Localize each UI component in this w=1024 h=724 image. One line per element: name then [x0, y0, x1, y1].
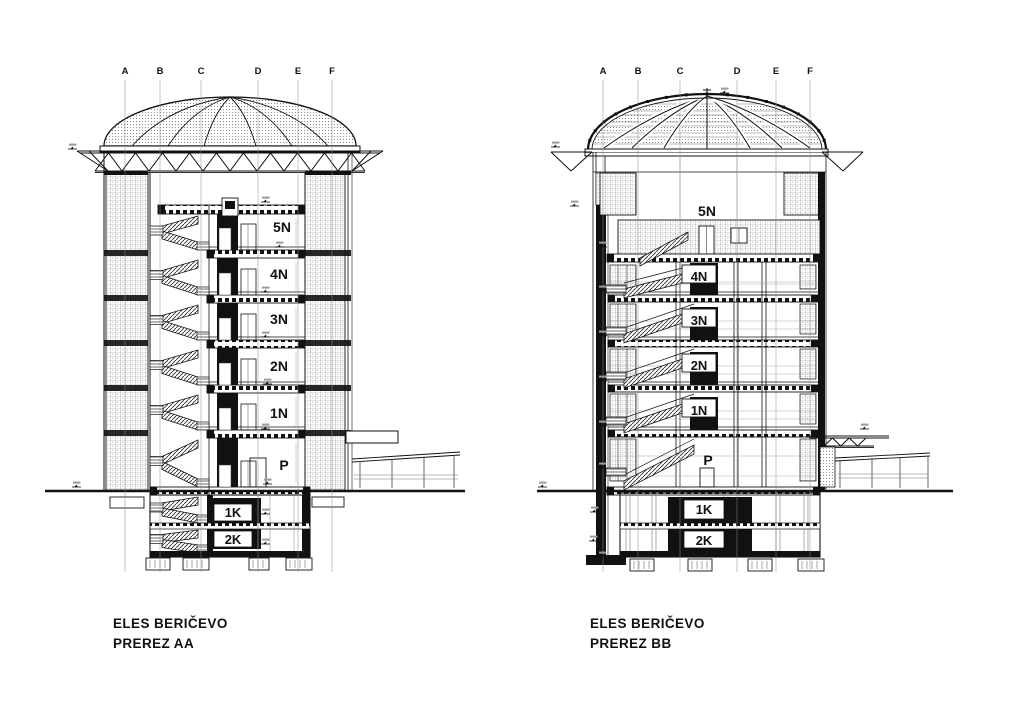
- stair-flight: [162, 366, 198, 386]
- architectural-drawing-page: 5N 4N 3N 2N 1N P 1K 2K ELES BERIČEVO PRE…: [0, 0, 1024, 724]
- grid-label: D: [255, 66, 262, 77]
- stair-flight: [162, 260, 198, 279]
- stair-flight: [162, 411, 198, 431]
- door-frame-aa: [241, 269, 256, 295]
- floor-label-2n: 2N: [270, 358, 288, 374]
- stair-flight: [162, 305, 198, 324]
- stair-flight: [162, 540, 198, 554]
- elevation-mark: [860, 424, 869, 429]
- stair-flight: [162, 321, 198, 341]
- elevation-mark: [263, 479, 272, 484]
- floor-label-2k: 2K: [225, 532, 242, 547]
- floor-label-1k: 1K: [696, 502, 713, 517]
- stair-flight: [162, 216, 198, 234]
- dome-bb: [551, 88, 863, 171]
- door-frame-aa: [241, 224, 256, 250]
- grid-label: A: [600, 66, 607, 77]
- project-title-bb: ELES BERIČEVO: [590, 616, 705, 631]
- grid-label: F: [807, 66, 813, 77]
- annex-aa: [346, 431, 460, 488]
- floor-label-1k: 1K: [225, 505, 242, 520]
- stair-flight: [162, 350, 198, 369]
- stair-flight: [162, 395, 198, 414]
- grid-label: B: [635, 66, 642, 77]
- pier-left-bb: [600, 173, 636, 215]
- floor-label-2n: 2N: [691, 358, 708, 373]
- floor-label-5n: 5N: [273, 219, 291, 235]
- section-name-aa: PREREZ AA: [113, 636, 194, 651]
- section-name-bb: PREREZ BB: [590, 636, 672, 651]
- section-aa: 5N 4N 3N 2N 1N P 1K 2K ELES BERIČEVO PRE…: [45, 97, 465, 651]
- stair-flight: [162, 276, 198, 296]
- elevation-mark: [261, 509, 270, 514]
- floor-label-5n: 5N: [698, 203, 716, 219]
- grid-label: E: [295, 66, 301, 77]
- dome-aa: [100, 97, 360, 152]
- floor-label-3n: 3N: [691, 313, 708, 328]
- floor-label-p: P: [703, 452, 712, 468]
- door-frame-aa: [241, 404, 256, 430]
- stair-flight: [162, 440, 198, 465]
- tech-floor-bb: [618, 220, 820, 254]
- section-bb: 5N 4N 3N 2N 1N P 1K 2K ELES BERIČEVO PRE…: [537, 88, 953, 651]
- elevation-mark: [72, 482, 81, 487]
- elevator-machine-aa: [225, 201, 235, 209]
- title-block-aa: ELES BERIČEVO PREREZ AA: [113, 616, 228, 651]
- elevation-mark: [261, 539, 270, 544]
- stair-flight: [162, 462, 198, 488]
- annex-bb: [809, 436, 930, 488]
- elevation-mark: [263, 379, 272, 384]
- grid-label: D: [734, 66, 741, 77]
- elevation-mark: [538, 482, 547, 487]
- floor-label-4n: 4N: [691, 269, 708, 284]
- elevation-mark: [261, 197, 270, 202]
- grid-label: C: [198, 66, 205, 77]
- elevation-mark: [68, 144, 77, 149]
- floor-label-3n: 3N: [270, 311, 288, 327]
- elevation-mark: [261, 424, 270, 429]
- elevation-mark: [275, 242, 284, 247]
- architectural-drawing: 5N 4N 3N 2N 1N P 1K 2K ELES BERIČEVO PRE…: [0, 0, 1024, 724]
- grid-label: B: [157, 66, 164, 77]
- stair-flight: [162, 508, 198, 523]
- elevation-mark: [720, 88, 729, 93]
- elevation-mark: [261, 332, 270, 337]
- stair-flight: [162, 231, 198, 250]
- door-frame-aa: [241, 359, 256, 385]
- floor-label-2k: 2K: [696, 533, 713, 548]
- grid-label: F: [329, 66, 335, 77]
- floor-label-4n: 4N: [270, 266, 288, 282]
- floor-label-p: P: [279, 457, 288, 473]
- grid-label: C: [677, 66, 684, 77]
- elevation-mark: [261, 287, 270, 292]
- grid-label: A: [122, 66, 129, 77]
- elevation-mark: [570, 201, 579, 206]
- project-title-aa: ELES BERIČEVO: [113, 616, 228, 631]
- floor-label-1n: 1N: [691, 403, 708, 418]
- grid-label: E: [773, 66, 779, 77]
- door-frame-aa: [241, 461, 256, 487]
- pier-right-bb: [784, 173, 820, 215]
- door-frame-aa: [241, 314, 256, 340]
- floor-label-1n: 1N: [270, 405, 288, 421]
- door-p-bb: [700, 468, 714, 487]
- elevation-mark: [551, 142, 560, 147]
- roof-truss-aa: [77, 151, 383, 173]
- title-block-bb: ELES BERIČEVO PREREZ BB: [590, 616, 705, 651]
